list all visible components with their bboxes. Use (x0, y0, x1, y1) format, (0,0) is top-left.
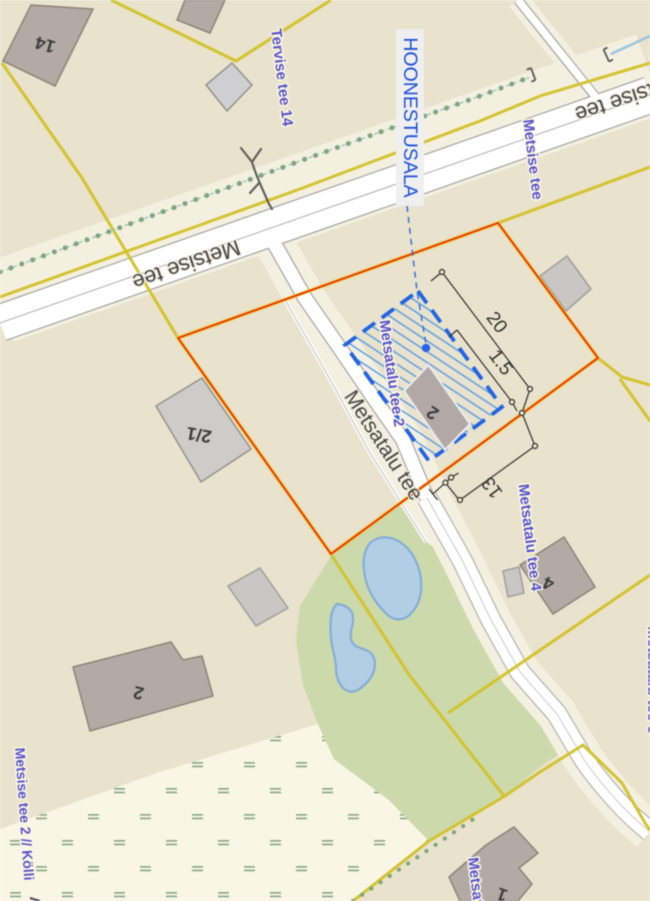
svg-text:Metsatalu tee 6: Metsatalu tee 6 (644, 626, 650, 734)
svg-text:HOONESTUSALA: HOONESTUSALA (399, 37, 421, 197)
svg-text:2/1: 2/1 (185, 423, 213, 447)
